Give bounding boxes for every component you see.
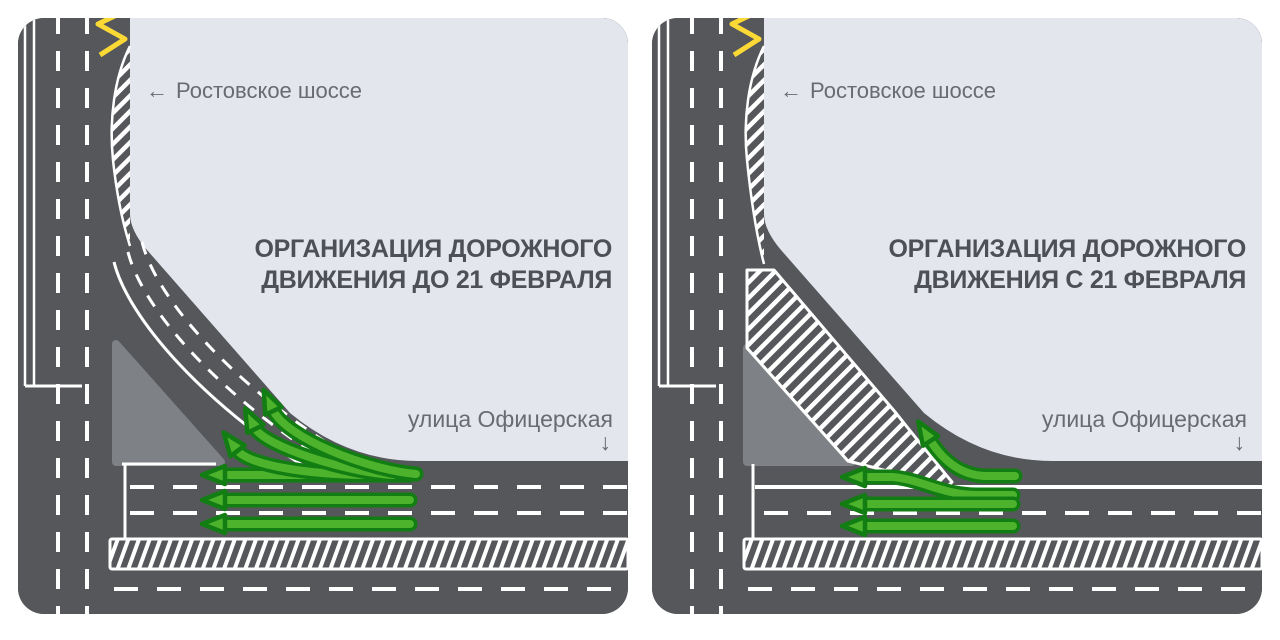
left-arrow-icon: ← <box>780 78 802 103</box>
after-panel: ←Ростовское шоссе ОРГАНИЗАЦИЯ ДОРОЖНОГО … <box>652 18 1262 614</box>
left-arrow-icon: ← <box>146 78 168 103</box>
before-panel: ←Ростовское шоссе ОРГАНИЗАЦИЯ ДОРОЖНОГО … <box>18 18 628 614</box>
down-arrow-icon: ↓ <box>1234 429 1246 456</box>
road-diagram-after <box>652 18 1262 614</box>
median-hatched-strip <box>744 539 1262 569</box>
down-arrow-icon: ↓ <box>600 429 612 456</box>
street-label: улица Офицерская <box>408 406 613 433</box>
highway-label: ←Ростовское шоссе <box>146 78 362 104</box>
highway-label: ←Ростовское шоссе <box>780 78 996 104</box>
street-label: улица Офицерская <box>1042 406 1247 433</box>
median-hatched-strip <box>110 539 628 569</box>
road-diagram-before <box>18 18 628 614</box>
panel-title: ОРГАНИЗАЦИЯ ДОРОЖНОГО ДВИЖЕНИЯ С 21 ФЕВР… <box>889 234 1246 296</box>
panel-title: ОРГАНИЗАЦИЯ ДОРОЖНОГО ДВИЖЕНИЯ ДО 21 ФЕВ… <box>255 234 612 296</box>
